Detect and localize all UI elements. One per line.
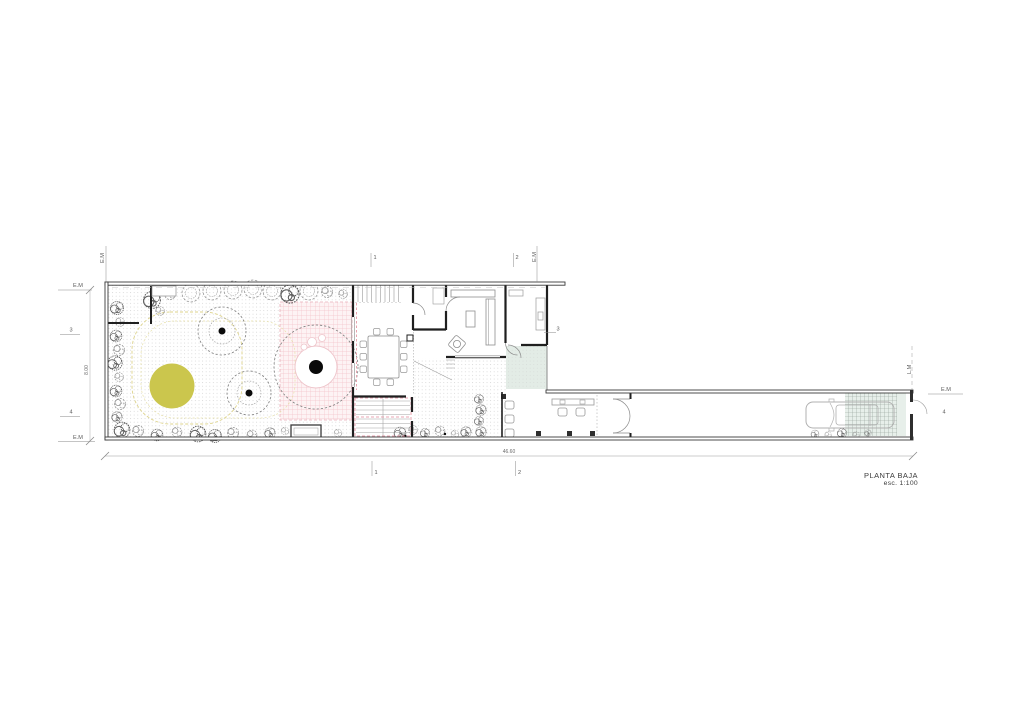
entry-room-fixtures <box>509 290 545 330</box>
planter-box <box>291 425 321 438</box>
section-marker-1-bottom: 1 <box>374 470 377 476</box>
tree-trunk <box>219 328 226 335</box>
tree-trunk <box>246 390 253 397</box>
drawing-scale: esc. 1:100 <box>864 480 918 488</box>
column <box>407 335 413 341</box>
section-marker-3-right: 3 <box>556 327 559 333</box>
em-label-top-right: E.M <box>532 252 538 262</box>
title-block: PLANTA BAJA esc. 1:100 <box>864 471 918 489</box>
studio-double-doors <box>613 393 631 437</box>
section-marker-2-top: 2 <box>515 255 518 261</box>
section-marker-3-left: 3 <box>69 328 72 334</box>
floor-plan-drawing: E.M E.M E.M E.M E.M L.M 1 2 1 2 3 4 3 4 … <box>0 0 1024 724</box>
em-label-left-bottom: E.M <box>73 435 83 441</box>
section-marker-2-bottom: 2 <box>518 470 521 476</box>
drawing-title: PLANTA BAJA <box>864 471 918 480</box>
plot-width-dimension: 8.00 <box>84 365 90 375</box>
section-marker-1-top: 1 <box>373 255 376 261</box>
dining-set <box>360 329 407 386</box>
tree-trunk <box>309 360 323 374</box>
floor-plan-canvas: E.M E.M E.M E.M E.M L.M 1 2 1 2 3 4 3 4 … <box>0 0 1024 724</box>
em-label-top-left: E.M <box>100 253 106 263</box>
yellow-lawn-circle <box>150 364 195 409</box>
gate-swing <box>913 400 927 414</box>
stairs-down-room <box>355 398 411 436</box>
section-marker-4-right: 4 <box>942 410 945 416</box>
pergola-grid <box>845 393 897 436</box>
studio-furniture <box>505 399 594 437</box>
living-room-furniture <box>448 290 495 353</box>
em-label-left-top: E.M <box>73 283 83 289</box>
garden-area <box>108 280 358 443</box>
closet-fixture <box>433 288 444 304</box>
em-label-right: E.M <box>941 387 951 393</box>
right-wing <box>501 393 927 438</box>
lm-label-right: L.M <box>907 364 913 374</box>
section-marker-4-left: 4 <box>69 410 72 416</box>
overall-length-dimension: 46.60 <box>503 449 516 455</box>
